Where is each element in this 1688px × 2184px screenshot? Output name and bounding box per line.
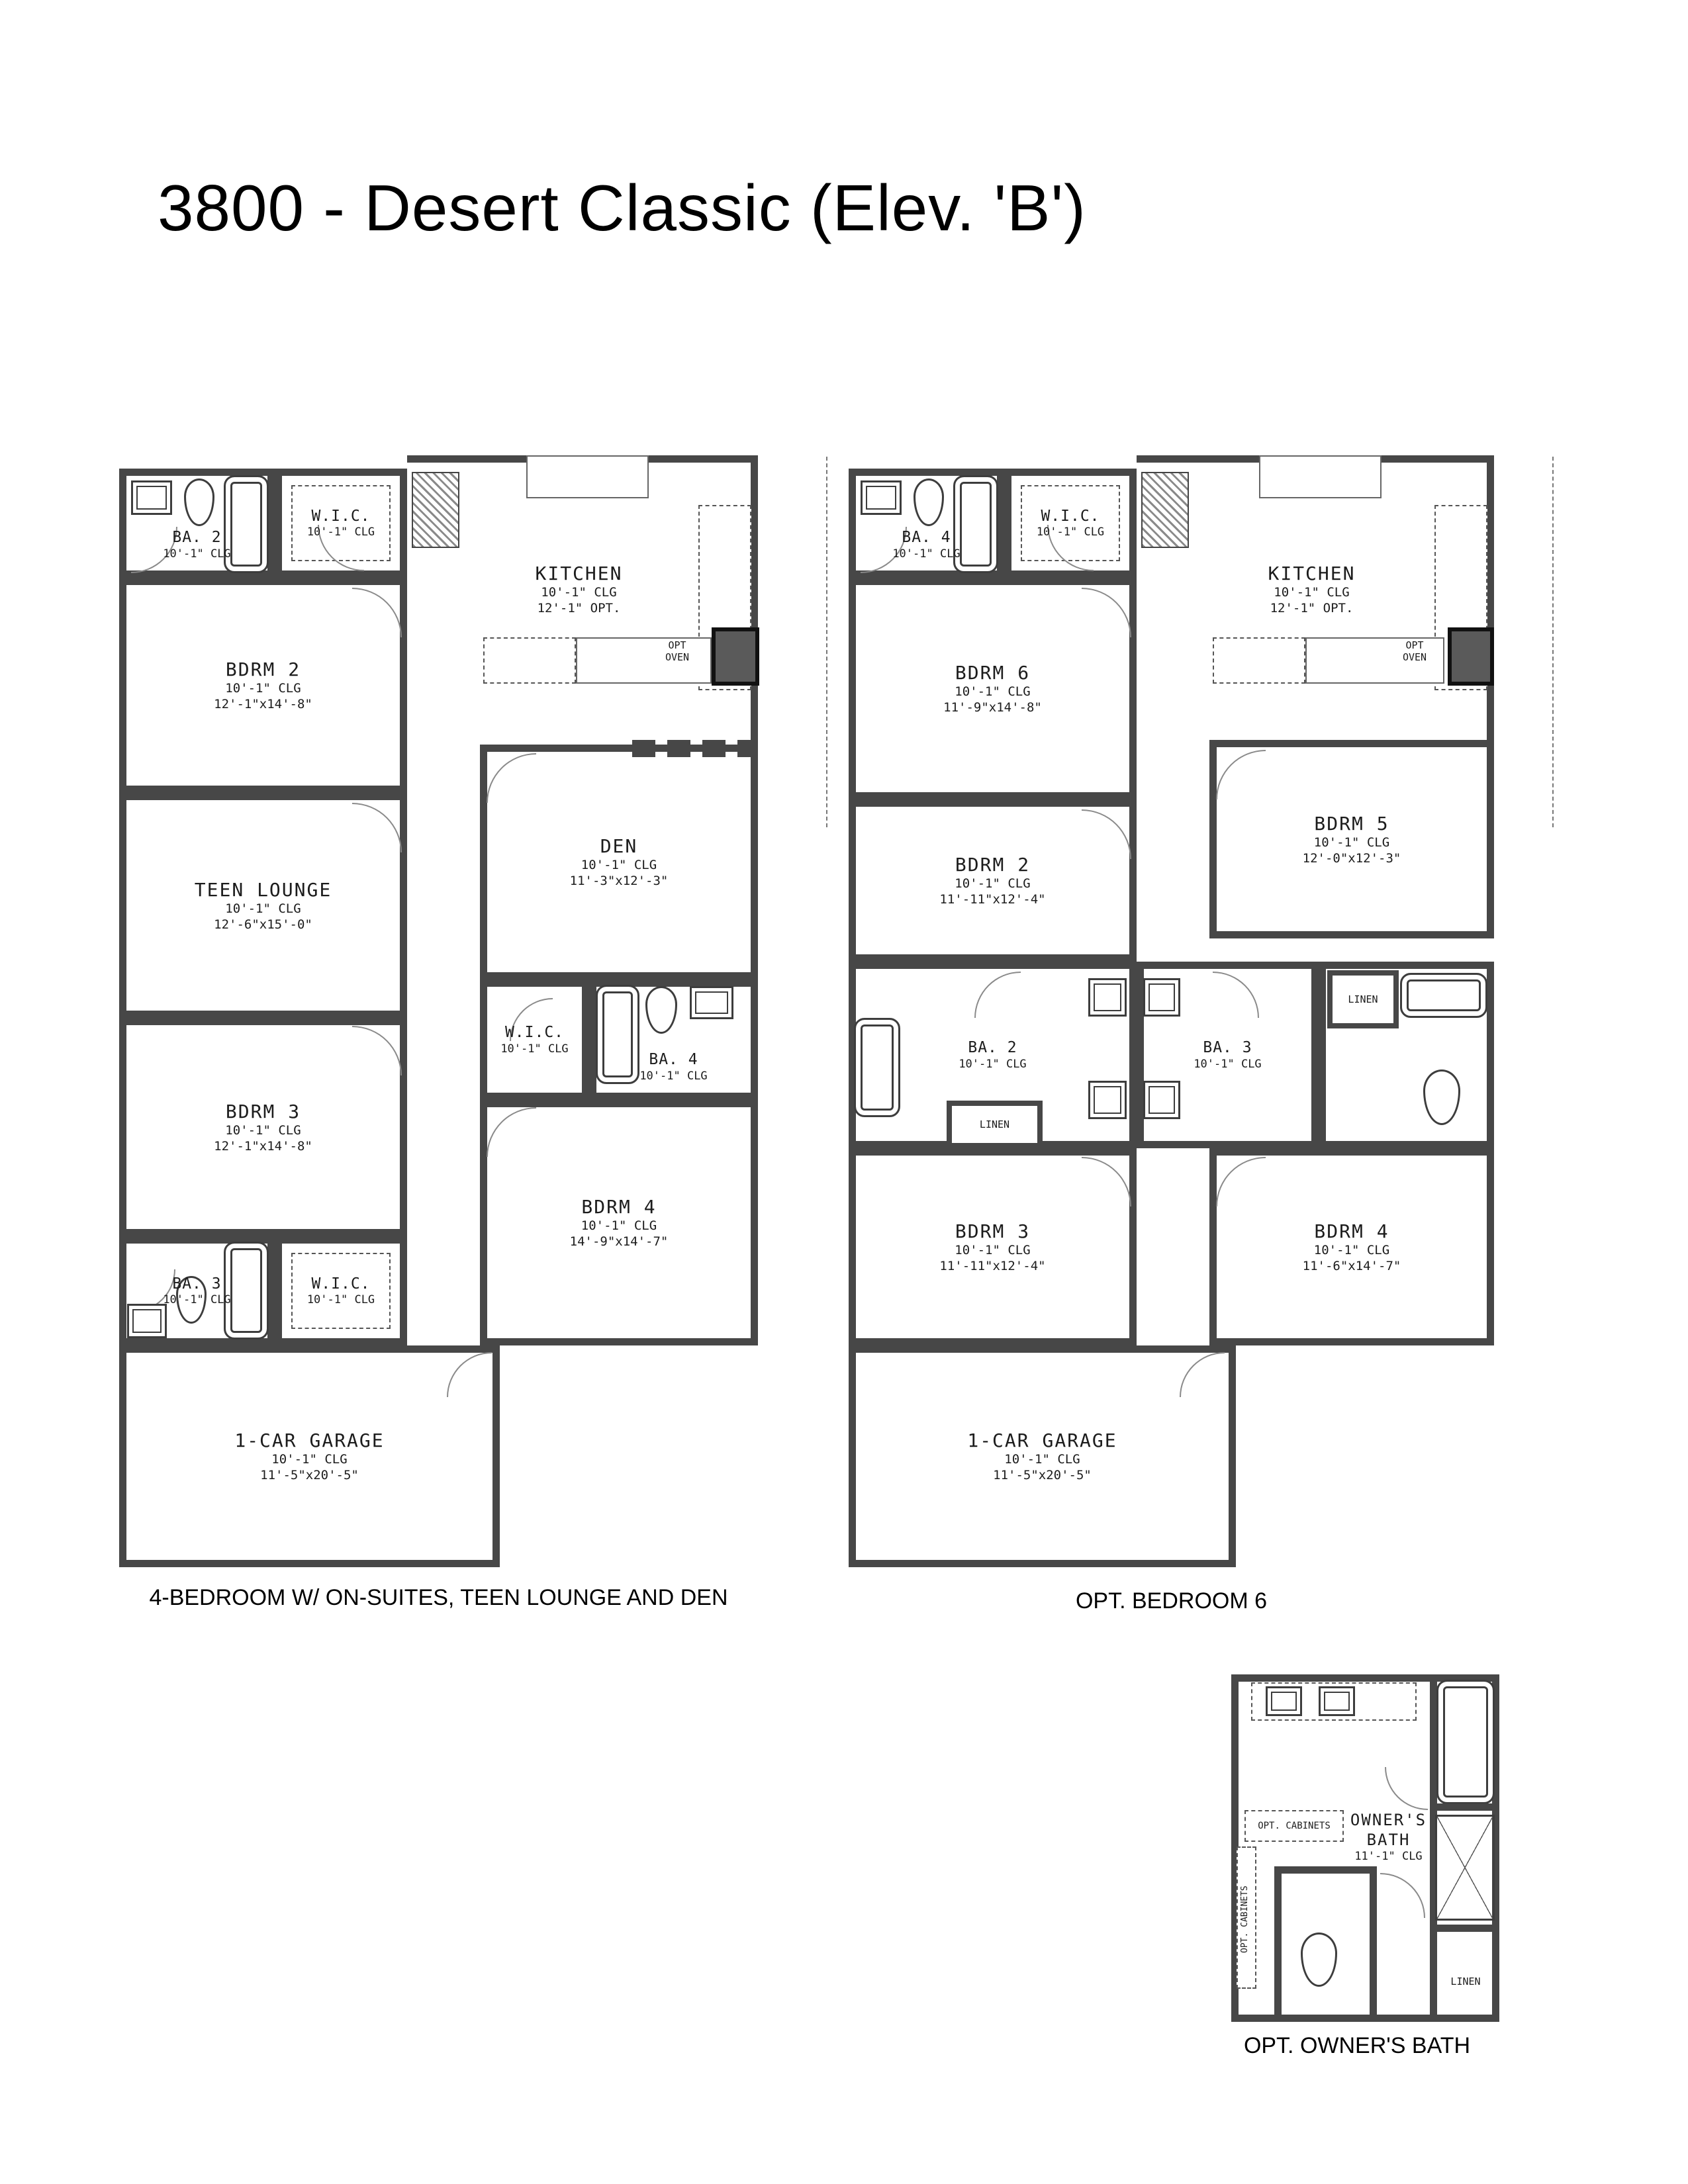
room-label: TEEN LOUNGE <box>195 878 332 901</box>
page-title: 3800 - Desert Classic (Elev. 'B') <box>158 171 1086 246</box>
room-dims: 11'-3"x12'-3" <box>570 874 669 889</box>
cooktop-icon <box>1141 472 1189 548</box>
plan-caption-opt-bedroom6: OPT. BEDROOM 6 <box>842 1588 1501 1614</box>
room-label: BDRM 4 <box>1303 1220 1401 1243</box>
plan-opt-bedroom6: BA. 4 10'-1" CLG W.I.C. 10'-1" CLG KITCH… <box>842 449 1501 1574</box>
room-wic-mid: W.I.C. 10'-1" CLG <box>480 979 589 1100</box>
window-mullion <box>702 740 726 757</box>
closet-linen-left: LINEN <box>947 1101 1043 1148</box>
room-dims: 12'-1"x14'-8" <box>214 697 312 713</box>
room-label: BA. 3 <box>1194 1038 1261 1058</box>
room-label: KITCHEN <box>1268 562 1355 585</box>
bathtub-icon <box>1400 973 1487 1018</box>
roof-overhang-line <box>1552 457 1554 827</box>
room-dims: 11'-5"x20'-5" <box>967 1468 1117 1484</box>
cooktop-icon <box>412 472 459 548</box>
linen-label: LINEN <box>980 1118 1009 1131</box>
plan-main: BA. 2 10'-1" CLG W.I.C. 10'-1" CLG KITCH… <box>113 449 765 1574</box>
room-dims: 14'-9"x14'-7" <box>570 1234 669 1250</box>
sink-icon <box>1319 1686 1355 1716</box>
closet-linen-right: LINEN <box>1327 970 1399 1028</box>
opt-oven-label: OPT OVEN <box>647 639 707 663</box>
room-dims: 12'-1" OPT. <box>535 601 622 617</box>
room-ceiling: 10'-1" CLG <box>234 1452 384 1468</box>
room-label: BDRM 2 <box>214 658 312 681</box>
room-label: BDRM 6 <box>943 661 1042 684</box>
sink-icon <box>1143 978 1180 1017</box>
sink-icon <box>131 480 172 515</box>
room-ceiling: 10'-1" CLG <box>214 1123 312 1139</box>
room-dims: 12'-1" OPT. <box>1268 601 1355 617</box>
sink-icon <box>127 1304 167 1338</box>
sink-icon <box>1266 1686 1302 1716</box>
room-ceiling: 10'-1" CLG <box>195 901 332 917</box>
room-dims: 11'-6"x14'-7" <box>1303 1259 1401 1275</box>
opt-cabinets-box: OPT. CABINETS <box>1244 1810 1344 1842</box>
room-dims: 11'-5"x20'-5" <box>234 1468 384 1484</box>
room-dims: 11'-11"x12'-4" <box>939 1259 1045 1275</box>
room-label: BDRM 4 <box>570 1195 669 1218</box>
room-dims: 11'-11"x12'-4" <box>939 892 1045 908</box>
opt-cabinets-label: OPT. CABINETS <box>1258 1821 1331 1832</box>
floorplan-sheet: 3800 - Desert Classic (Elev. 'B') BA. 2 … <box>0 0 1688 2184</box>
plan-opt-owners-bath: OPT. CABINETS OPT. CABINETS OWNER'S BATH… <box>1211 1668 1503 2028</box>
roof-overhang-line <box>826 457 827 827</box>
room-ceiling: 10'-1" CLG <box>500 1042 568 1056</box>
kitchen-counter-outline <box>483 637 576 684</box>
opt-oven-box <box>712 627 759 686</box>
room-ceiling: 10'-1" CLG <box>967 1452 1117 1468</box>
wall-segment <box>1430 1925 1499 1932</box>
room-label: BDRM 3 <box>939 1220 1045 1243</box>
room-ceiling: 10'-1" CLG <box>1194 1058 1261 1071</box>
room-ceiling: 10'-1" CLG <box>1303 835 1401 851</box>
owners-bath-label-block: OWNER'S BATH 11'-1" CLG <box>1340 1810 1436 1864</box>
plan-caption-opt-owners-bath: OPT. OWNER'S BATH <box>1211 2033 1503 2059</box>
room-ceiling: 10'-1" CLG <box>639 1069 707 1083</box>
bathtub-icon <box>854 1018 900 1117</box>
room-label: W.I.C. <box>307 507 375 526</box>
opt-oven-label: OPT OVEN <box>1385 639 1444 663</box>
room-ceiling: 10'-1" CLG <box>570 1218 669 1234</box>
linen-label: LINEN <box>1348 993 1378 1006</box>
room-label: BA. 2 <box>163 528 230 547</box>
room-ceiling: 10'-1" CLG <box>307 525 375 539</box>
sink-icon <box>1088 1081 1127 1119</box>
room-label: BDRM 5 <box>1303 812 1401 835</box>
sink-icon <box>1088 978 1127 1017</box>
room-dims: 12'-6"x15'-0" <box>195 917 332 933</box>
sink-icon <box>690 986 733 1019</box>
bathtub-icon <box>1436 1680 1495 1804</box>
room-ceiling: 10'-1" CLG <box>939 876 1045 892</box>
room-dims: 11'-9"x14'-8" <box>943 700 1042 716</box>
room-ceiling: 11'-1" CLG <box>1340 1850 1436 1864</box>
room-label: 1-CAR GARAGE <box>967 1429 1117 1452</box>
room-label: KITCHEN <box>535 562 622 585</box>
room-ceiling: 10'-1" CLG <box>943 684 1042 700</box>
kitchen-island <box>526 455 649 498</box>
room-label: BDRM 3 <box>214 1100 312 1123</box>
room-label: BA. 4 <box>892 528 960 547</box>
window-mullion <box>737 740 758 757</box>
room-ceiling: 10'-1" CLG <box>307 1293 375 1307</box>
room-garage: 1-CAR GARAGE 10'-1" CLG 11'-5"x20'-5" <box>119 1345 500 1567</box>
room-label: DEN <box>570 835 669 858</box>
room-ceiling: 10'-1" CLG <box>939 1243 1045 1259</box>
room-ceiling: 10'-1" CLG <box>163 1293 230 1307</box>
room-label: W.I.C. <box>1037 507 1104 526</box>
shower-icon <box>1435 1815 1495 1921</box>
window-mullion <box>667 740 690 757</box>
sink-icon <box>1143 1081 1180 1119</box>
window-mullion <box>632 740 655 757</box>
room-label: 1-CAR GARAGE <box>234 1429 384 1452</box>
bathtub-icon <box>596 985 639 1084</box>
room-ceiling: 10'-1" CLG <box>1037 525 1104 539</box>
room-ceiling: 10'-1" CLG <box>570 858 669 874</box>
room-label: BA. 3 <box>163 1275 230 1294</box>
room-ceiling: 10'-1" CLG <box>214 681 312 697</box>
opt-cabinets-label-vertical: OPT. CABINETS <box>1240 1863 1250 1976</box>
plan-caption-main: 4-BEDROOM W/ ON-SUITES, TEEN LOUNGE AND … <box>113 1585 765 1611</box>
room-garage: 1-CAR GARAGE 10'-1" CLG 11'-5"x20'-5" <box>849 1345 1236 1567</box>
kitchen-island <box>1259 455 1382 498</box>
room-label: OWNER'S BATH <box>1340 1810 1436 1850</box>
room-ceiling: 10'-1" CLG <box>163 547 230 561</box>
room-ceiling: 10'-1" CLG <box>959 1058 1026 1071</box>
room-dims: 12'-1"x14'-8" <box>214 1139 312 1155</box>
room-ceiling: 10'-1" CLG <box>535 585 622 601</box>
sink-icon <box>861 480 902 515</box>
room-ceiling: 10'-1" CLG <box>892 547 960 561</box>
linen-label: LINEN <box>1436 1976 1495 1987</box>
wall-segment <box>1430 1803 1499 1811</box>
kitchen-counter-outline <box>1213 637 1305 684</box>
room-label: BA. 4 <box>639 1050 707 1069</box>
room-label: W.I.C. <box>500 1023 568 1042</box>
room-ceiling: 10'-1" CLG <box>1303 1243 1401 1259</box>
room-label: BA. 2 <box>959 1038 1026 1058</box>
room-label: BDRM 2 <box>939 853 1045 876</box>
room-dims: 12'-0"x12'-3" <box>1303 851 1401 867</box>
room-ceiling: 10'-1" CLG <box>1268 585 1355 601</box>
opt-oven-box <box>1448 627 1494 686</box>
room-label: W.I.C. <box>307 1275 375 1294</box>
